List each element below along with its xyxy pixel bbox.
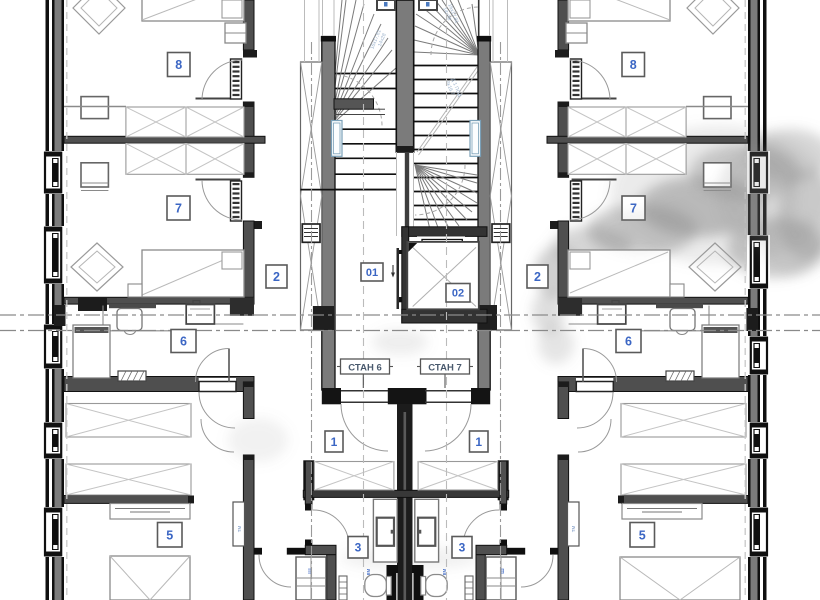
svg-text:02: 02 — [452, 288, 464, 300]
svg-text:1: 1 — [331, 435, 338, 449]
svg-text:ш: ш — [307, 568, 314, 574]
svg-text:TM: TM — [237, 526, 242, 533]
svg-text:6: 6 — [625, 335, 632, 349]
svg-text:СТАН 6: СТАН 6 — [348, 363, 381, 374]
svg-text:8: 8 — [175, 58, 182, 72]
svg-text:5: 5 — [639, 528, 646, 542]
svg-text:3: 3 — [355, 541, 362, 555]
svg-text:2: 2 — [273, 270, 280, 284]
svg-text:СТАН 7: СТАН 7 — [428, 363, 461, 374]
svg-text:8: 8 — [630, 58, 637, 72]
svg-text:6: 6 — [180, 335, 187, 349]
svg-text:2: 2 — [534, 270, 541, 284]
svg-text:TM: TM — [571, 526, 576, 533]
svg-text:3: 3 — [459, 541, 466, 555]
svg-text:01: 01 — [366, 267, 378, 279]
svg-text:5: 5 — [166, 528, 173, 542]
svg-text:7: 7 — [175, 202, 182, 216]
svg-text:вм: вм — [442, 568, 448, 575]
svg-text:1: 1 — [475, 435, 482, 449]
